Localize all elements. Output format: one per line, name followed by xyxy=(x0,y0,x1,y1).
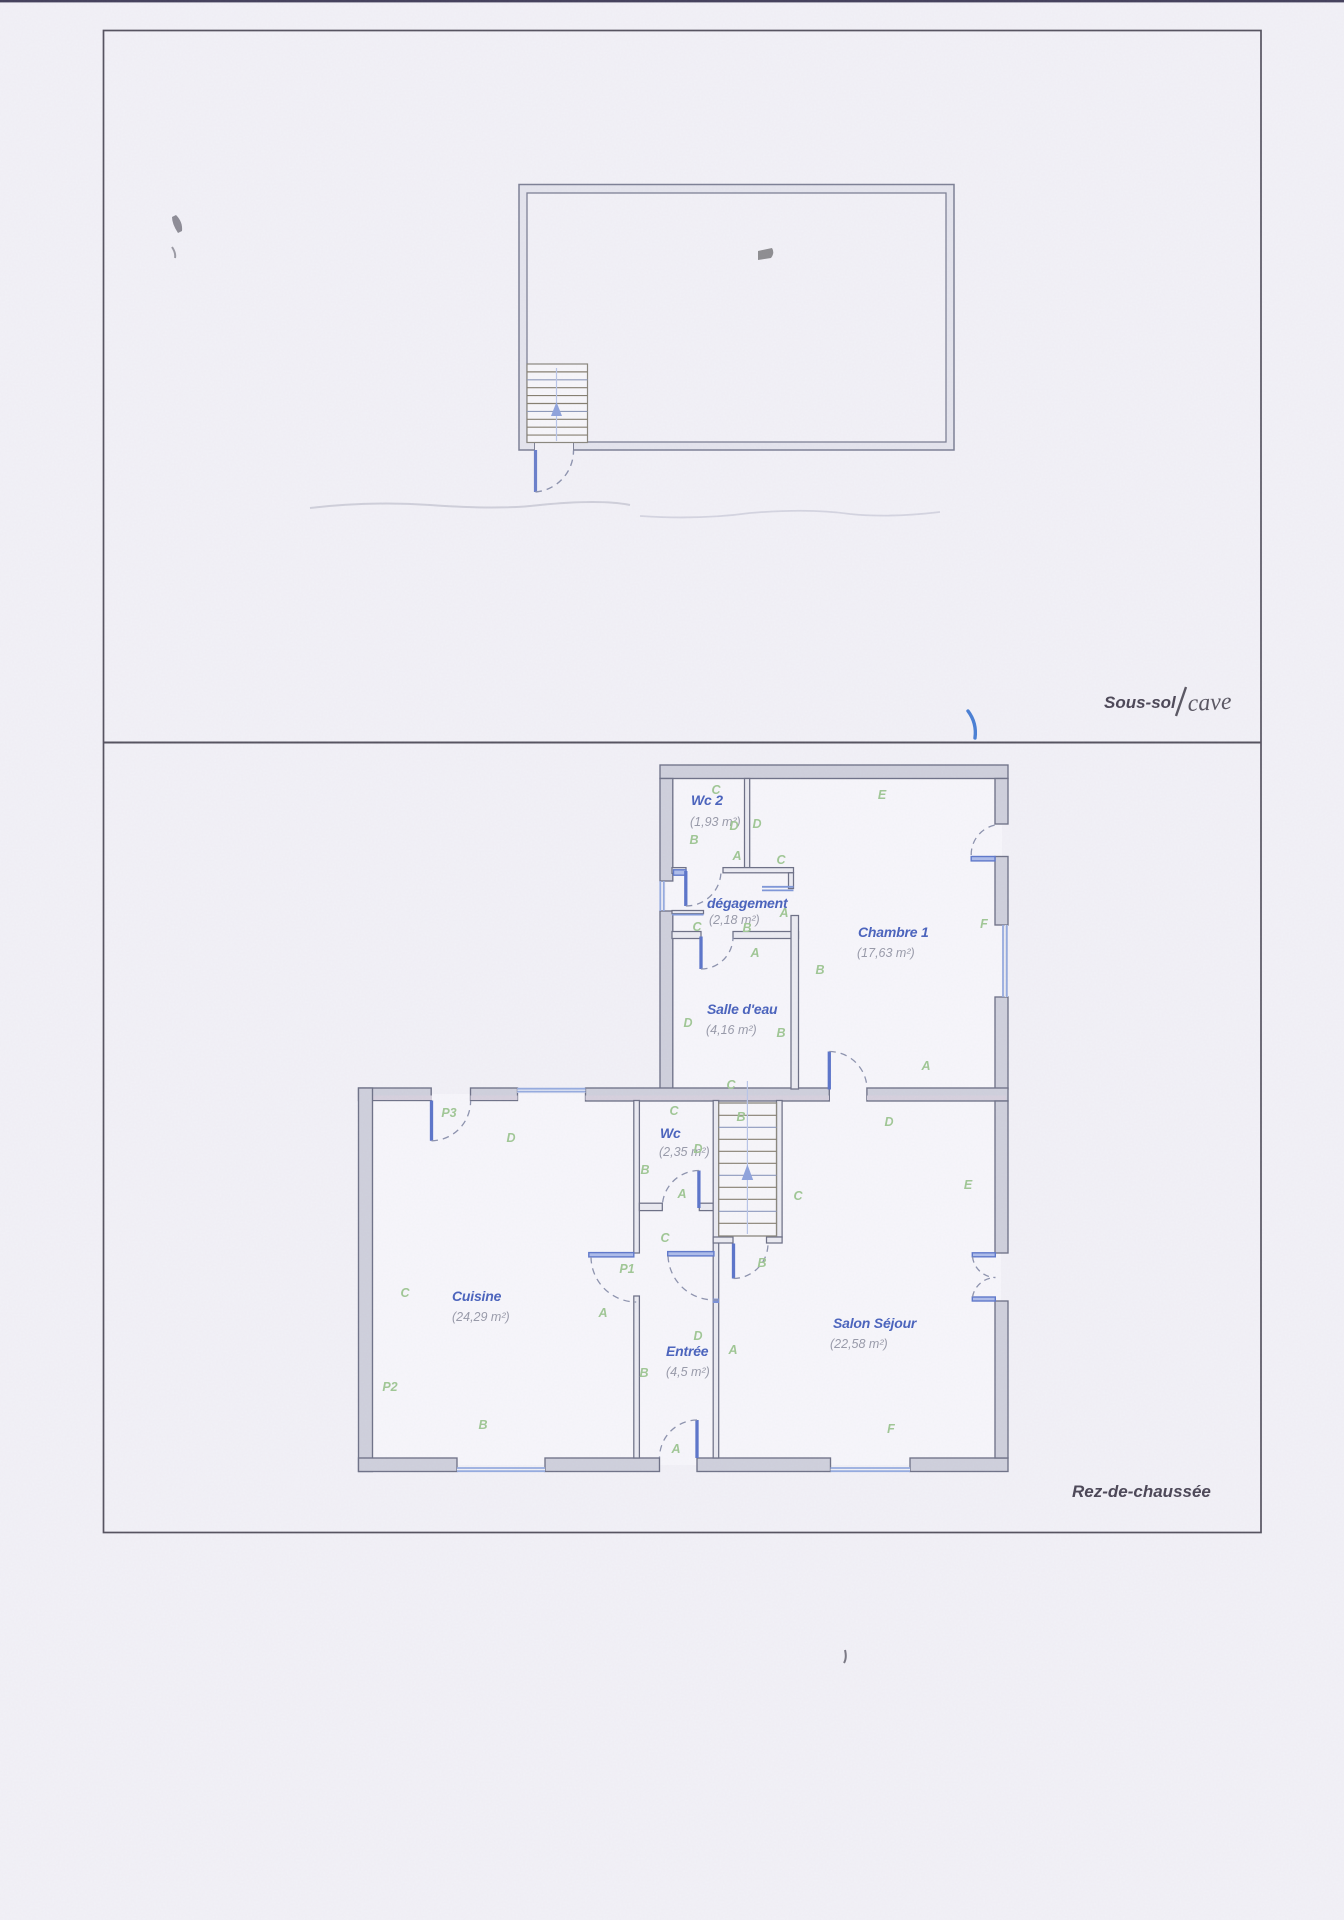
svg-text:A: A xyxy=(778,906,788,920)
svg-text:Sous-sol: Sous-sol xyxy=(1104,693,1177,712)
svg-text:P3: P3 xyxy=(441,1106,456,1120)
svg-text:D: D xyxy=(506,1131,515,1145)
svg-text:C: C xyxy=(793,1189,803,1203)
svg-text:(22,58 m²): (22,58 m²) xyxy=(830,1337,888,1351)
svg-text:D: D xyxy=(884,1115,893,1129)
svg-text:E: E xyxy=(964,1178,973,1192)
svg-text:A: A xyxy=(920,1059,930,1073)
svg-text:E: E xyxy=(878,788,887,802)
svg-text:A: A xyxy=(670,1442,680,1456)
svg-text:Wc: Wc xyxy=(660,1125,681,1141)
svg-text:Salon Séjour: Salon Séjour xyxy=(833,1315,918,1331)
svg-text:(4,5 m²): (4,5 m²) xyxy=(666,1365,710,1379)
svg-text:Chambre 1: Chambre 1 xyxy=(858,924,929,940)
svg-text:Entrée: Entrée xyxy=(666,1343,709,1359)
svg-text:Cuisine: Cuisine xyxy=(452,1288,502,1304)
svg-text:D: D xyxy=(683,1016,692,1030)
svg-text:B: B xyxy=(640,1163,649,1177)
svg-text:B: B xyxy=(736,1110,745,1124)
svg-text:A: A xyxy=(597,1306,607,1320)
svg-text:cave: cave xyxy=(1187,689,1233,717)
svg-text:D: D xyxy=(693,1142,702,1156)
svg-text:A: A xyxy=(749,946,759,960)
svg-text:A: A xyxy=(727,1343,737,1357)
svg-text:C: C xyxy=(776,853,786,867)
svg-text:B: B xyxy=(815,963,824,977)
svg-text:D: D xyxy=(752,817,761,831)
svg-text:(2,18 m²): (2,18 m²) xyxy=(709,913,760,927)
svg-text:B: B xyxy=(776,1026,785,1040)
svg-text:C: C xyxy=(400,1286,410,1300)
svg-text:Rez-de-chaussée: Rez-de-chaussée xyxy=(1072,1482,1211,1501)
svg-text:C: C xyxy=(660,1231,670,1245)
svg-text:D: D xyxy=(729,819,738,833)
svg-text:P2: P2 xyxy=(382,1380,397,1394)
svg-text:F: F xyxy=(980,917,988,931)
svg-text:(4,16 m²): (4,16 m²) xyxy=(706,1023,757,1037)
svg-text:C: C xyxy=(726,1078,736,1092)
svg-text:B: B xyxy=(639,1366,648,1380)
svg-text:C: C xyxy=(669,1104,679,1118)
svg-text:B: B xyxy=(742,921,751,935)
svg-text:(17,63 m²): (17,63 m²) xyxy=(857,946,915,960)
svg-text:dégagement: dégagement xyxy=(707,895,789,911)
svg-text:C: C xyxy=(692,920,702,934)
svg-text:Salle d'eau: Salle d'eau xyxy=(707,1001,778,1017)
svg-text:C: C xyxy=(711,783,721,797)
svg-text:A: A xyxy=(731,849,741,863)
svg-text:D: D xyxy=(693,1329,702,1343)
svg-text:P1: P1 xyxy=(619,1262,634,1276)
svg-text:F: F xyxy=(887,1422,895,1436)
svg-text:(24,29 m²): (24,29 m²) xyxy=(452,1310,510,1324)
svg-text:B: B xyxy=(478,1418,487,1432)
svg-text:B: B xyxy=(757,1256,766,1270)
svg-text:B: B xyxy=(689,833,698,847)
svg-text:A: A xyxy=(676,1187,686,1201)
